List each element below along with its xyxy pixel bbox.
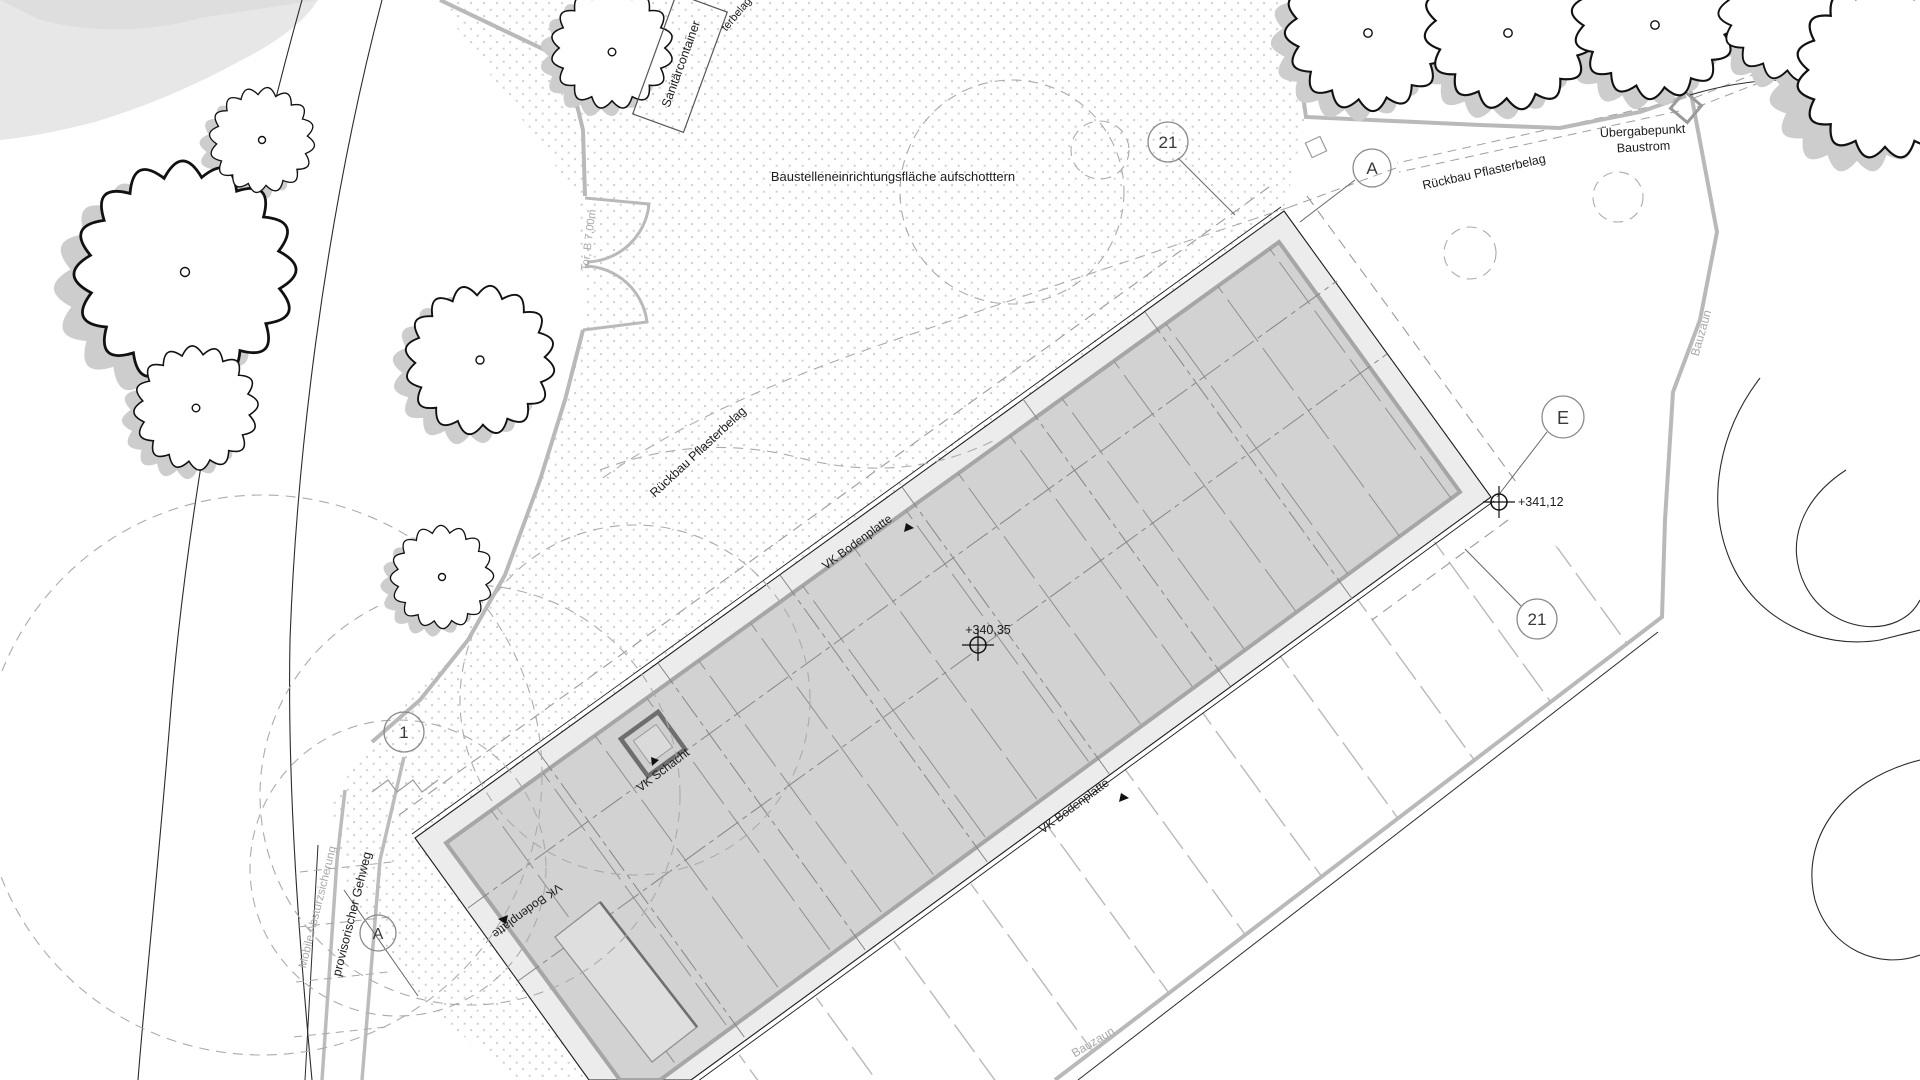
marker-e: E (1557, 408, 1569, 428)
marker-21-right: 21 (1528, 610, 1547, 629)
site-plan-canvas: 21 A E 21 1 A Baustelleneinrichtungsfläc… (0, 0, 1920, 1080)
marker-21-top: 21 (1159, 133, 1178, 152)
marker-1: 1 (399, 723, 408, 742)
elevation-corner-text: +341,12 (1518, 495, 1564, 509)
elevation-center-text: +340,35 (965, 623, 1011, 637)
label-uebergabepunkt-line2: Baustrom (1616, 139, 1670, 156)
marker-a-bottom: A (373, 926, 384, 943)
marker-a-top: A (1366, 159, 1378, 178)
label-site-area: Baustelleneinrichtungsfläche aufschottte… (771, 169, 1015, 184)
